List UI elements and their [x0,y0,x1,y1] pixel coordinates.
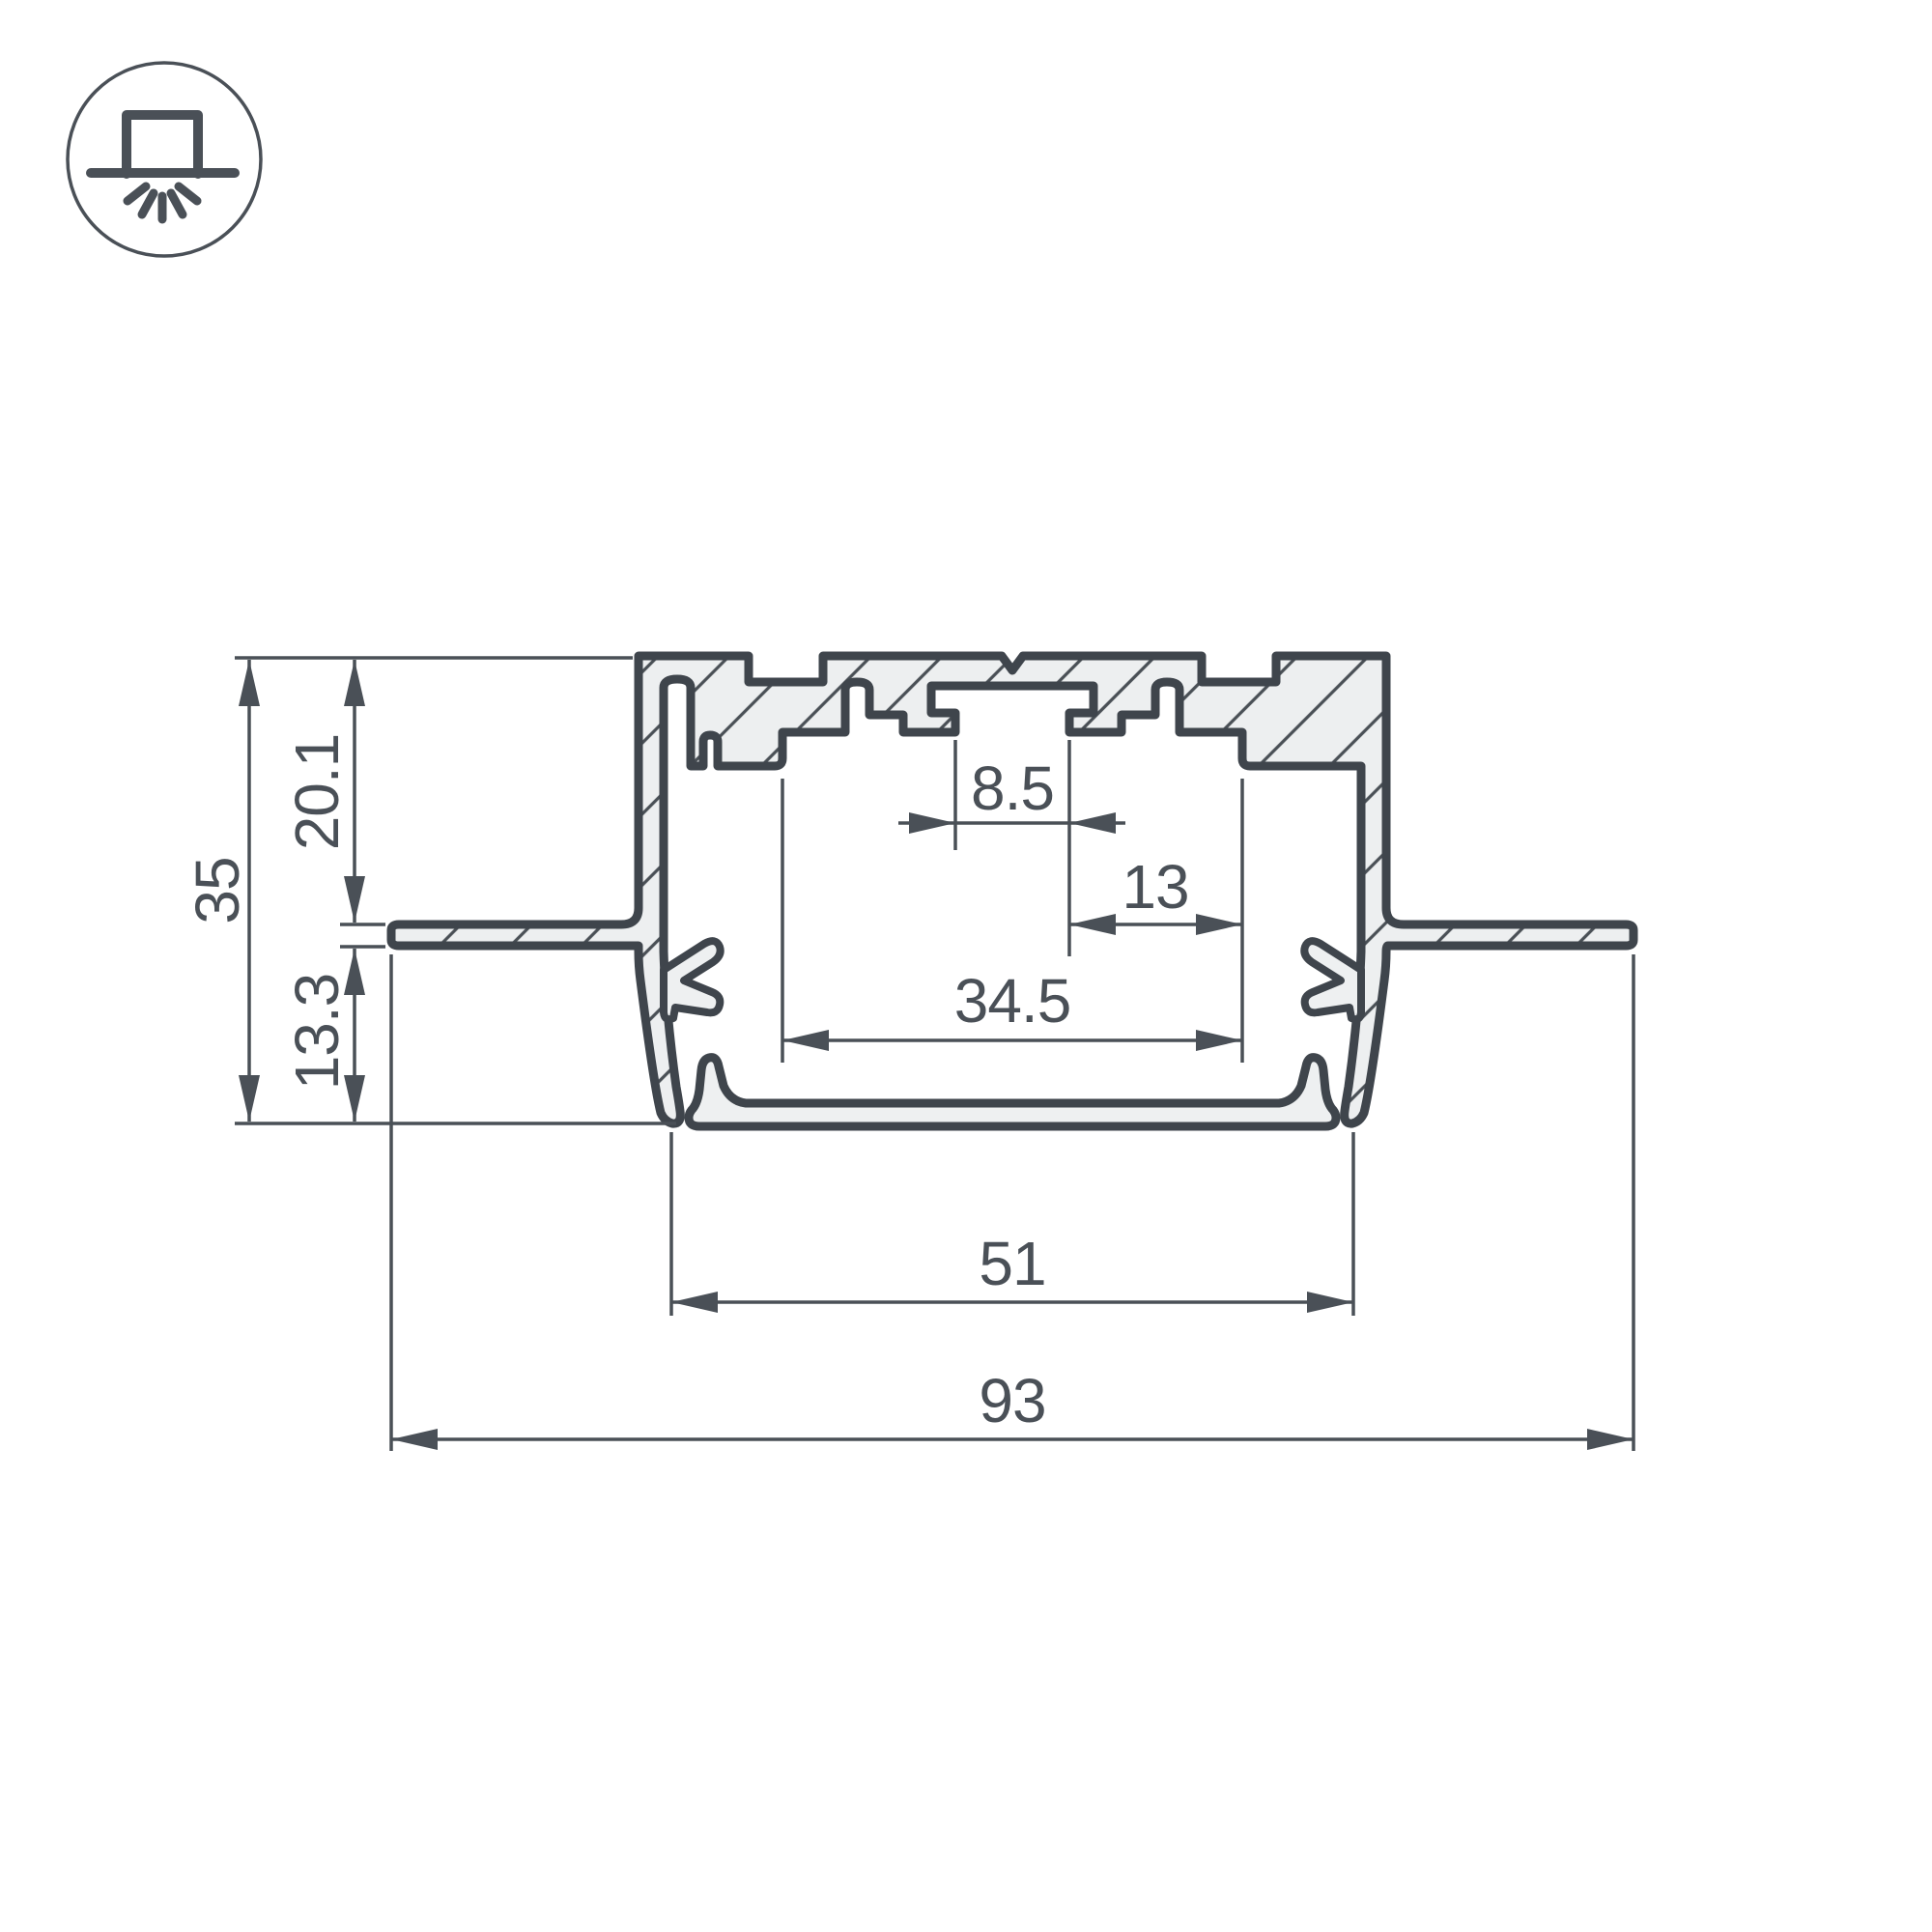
drawing-page: 35 20.1 13.3 8.5 13 34.5 51 93 [0,0,1932,1932]
dim-label-lower-height: 13.3 [282,974,352,1091]
dim-label-upper-height: 20.1 [282,734,352,851]
dim-label-slot-offset: 13 [1122,852,1188,922]
dim-label-slot-width: 8.5 [971,753,1054,823]
technical-drawing: 35 20.1 13.3 8.5 13 34.5 51 93 [0,0,1932,1932]
dim-label-body-width: 51 [979,1229,1045,1298]
dim-label-inner-width: 34.5 [954,966,1071,1036]
dim-label-overall-width: 93 [979,1366,1045,1435]
dim-label-total-height: 35 [183,857,252,923]
